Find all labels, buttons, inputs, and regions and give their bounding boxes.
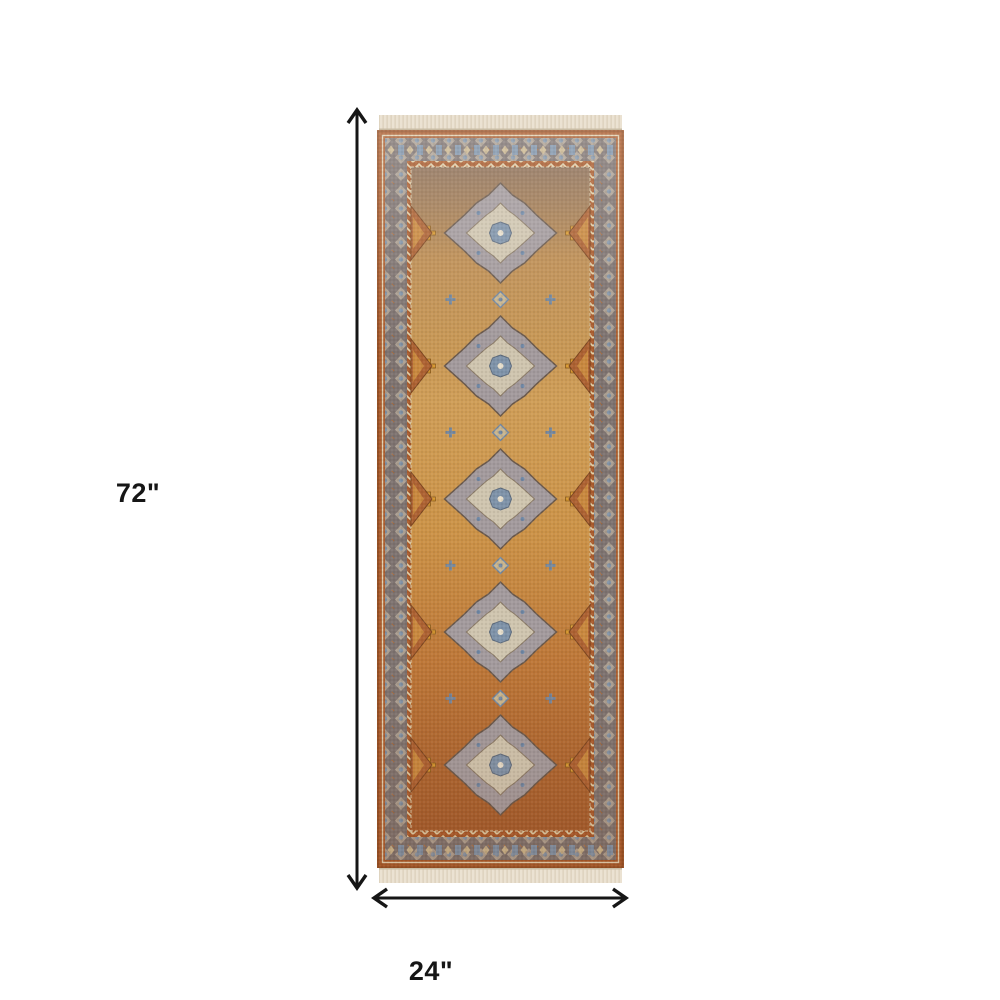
rug-image: [377, 115, 624, 883]
height-label: 72": [108, 480, 168, 507]
product-dimension-diagram: 72" 24": [0, 0, 1000, 1000]
height-dimension-arrow-icon: [344, 102, 370, 896]
width-dimension-arrow-icon: [366, 885, 634, 911]
width-label: 24": [400, 958, 462, 985]
